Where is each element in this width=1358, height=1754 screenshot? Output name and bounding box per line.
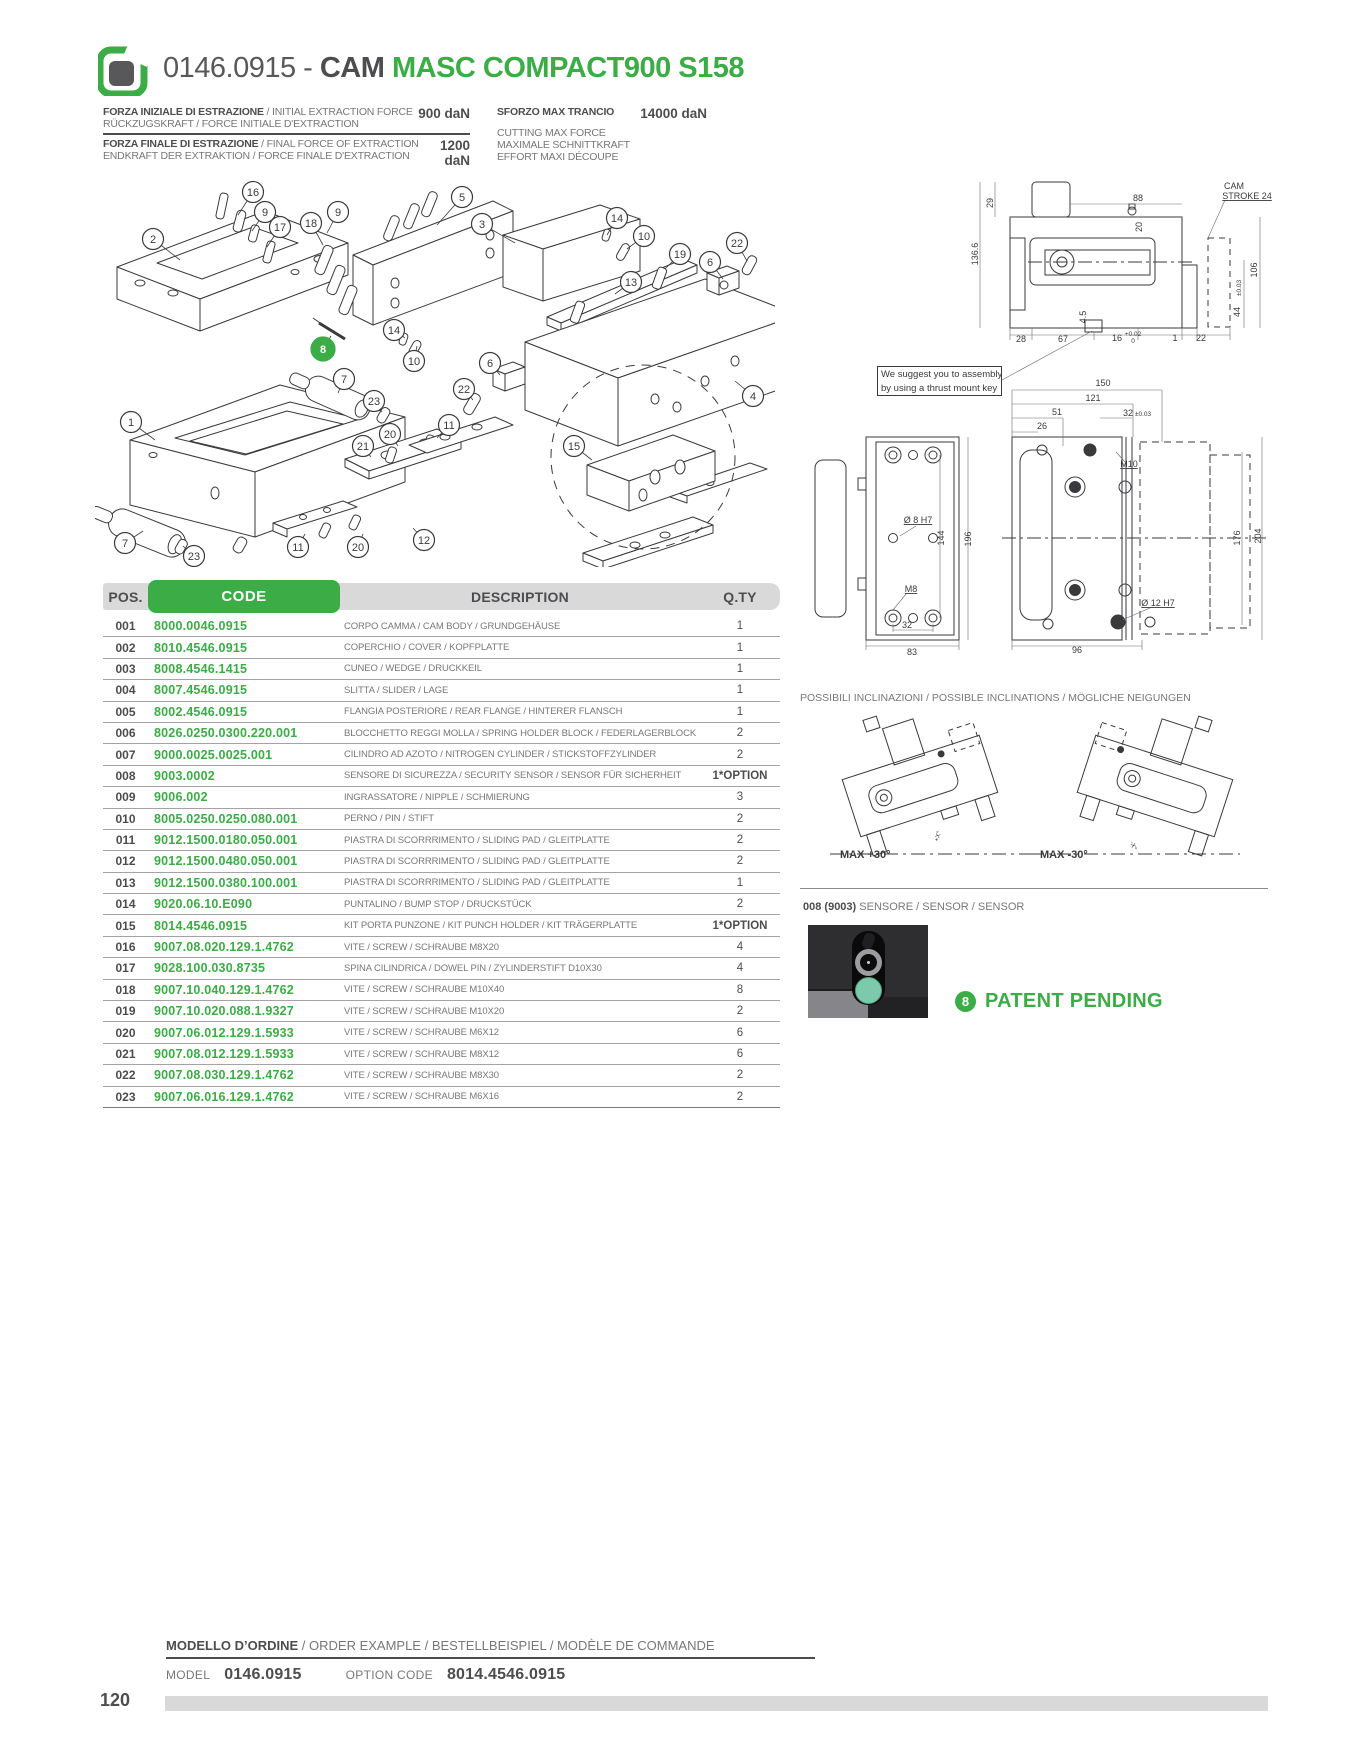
cell-description: SLITTA / SLIDER / LAGE [344, 685, 700, 696]
cell-qty: 2 [700, 1069, 780, 1081]
table-row: 0229007.08.030.129.1.4762VITE / SCREW / … [103, 1065, 780, 1086]
cell-code: 8010.4546.0915 [148, 641, 344, 655]
cell-pos: 020 [103, 1026, 148, 1040]
spec-cutting-l2: MAXIMALE SCHNITTKRAFT [497, 139, 707, 151]
cell-code: 8007.4546.0915 [148, 683, 344, 697]
cell-code: 9012.1500.0480.050.001 [148, 854, 344, 868]
dim-label: 51 [1052, 407, 1062, 417]
svg-text:6: 6 [487, 358, 493, 370]
cell-code: 9028.100.030.8735 [148, 961, 344, 975]
table-row: 0048007.4546.0915SLITTA / SLIDER / LAGE1 [103, 680, 780, 701]
brand-logo-icon [98, 46, 148, 96]
cell-pos: 004 [103, 683, 148, 697]
cell-qty: 1 [700, 620, 780, 632]
cell-description: SENSORE DI SICUREZZA / SECURITY SENSOR /… [344, 770, 700, 781]
max-plus-label: MAX +30° [840, 849, 891, 861]
dim-label: 16 [1112, 333, 1122, 343]
patent-pending-label: PATENT PENDING [985, 990, 1163, 1013]
cell-pos: 006 [103, 726, 148, 740]
cell-pos: 009 [103, 790, 148, 804]
cell-description: VITE / SCREW / SCHRAUBE M6X12 [344, 1027, 700, 1038]
svg-text:9: 9 [335, 207, 341, 219]
dim-label: 32 [902, 620, 912, 630]
section-divider [800, 888, 1268, 889]
svg-text:23: 23 [368, 396, 380, 408]
dim-label: 136.6 [970, 243, 980, 266]
svg-text:10: 10 [408, 356, 420, 368]
cell-code: 9000.0025.0025.001 [148, 748, 344, 762]
cell-description: PIASTRA DI SCORRRIMENTO / SLIDING PAD / … [344, 835, 700, 846]
dim-label: 204 [1253, 528, 1263, 543]
col-header-qty: Q.TY [700, 589, 780, 605]
cell-description: BLOCCHETTO REGGI MOLLA / SPRING HOLDER B… [344, 728, 700, 739]
svg-text:16: 16 [247, 187, 259, 199]
dimension-drawings: 29136.68820CAMSTROKE 24106±0.034428674.5… [730, 150, 1280, 670]
cell-code: 9007.10.020.088.1.9327 [148, 1004, 344, 1018]
cell-pos: 003 [103, 662, 148, 676]
cell-description: COPERCHIO / COVER / KOPFPLATTE [344, 642, 700, 653]
model-value: 0146.0915 [224, 1666, 301, 1684]
sensor-green-button [855, 977, 882, 1004]
svg-text:10: 10 [638, 231, 650, 243]
svg-text:+X°: +X° [932, 830, 943, 843]
dim-label: 121 [1085, 393, 1100, 403]
cell-pos: 023 [103, 1090, 148, 1104]
svg-text:18: 18 [305, 218, 317, 230]
spec-divider [103, 133, 470, 135]
product-family: CAM [320, 52, 392, 84]
dim-label: 88 [1133, 193, 1143, 203]
dim-label: 106 [1249, 262, 1259, 277]
cell-code: 8002.4546.0915 [148, 705, 344, 719]
svg-text:7: 7 [341, 374, 347, 386]
dim-label: M8 [905, 584, 918, 594]
cell-description: PUNTALINO / BUMP STOP / DRUCKSTÜCK [344, 899, 700, 910]
spec-cutting-title: SFORZO MAX TRANCIO [497, 106, 614, 121]
table-row: 0199007.10.020.088.1.9327VITE / SCREW / … [103, 1001, 780, 1022]
dim-label: 26 [1037, 421, 1047, 431]
cell-pos: 022 [103, 1068, 148, 1082]
dim-label: 44 [1232, 307, 1242, 317]
cell-qty: 3 [700, 791, 780, 803]
dim-label: Ø 8 H7 [904, 515, 933, 525]
dim-label: Ø 12 H7 [1141, 598, 1175, 608]
cell-description: SPINA CILINDRICA / DOWEL PIN / ZYLINDERS… [344, 963, 700, 974]
svg-text:1: 1 [128, 417, 134, 429]
table-row: 0129012.1500.0480.050.001PIASTRA DI SCOR… [103, 851, 780, 872]
cell-code: 8014.4546.0915 [148, 919, 344, 933]
cell-qty: 1 [700, 877, 780, 889]
parts-table: 0018000.0046.0915CORPO CAMMA / CAM BODY … [103, 616, 780, 1108]
cell-description: CUNEO / WEDGE / DRUCKKEIL [344, 663, 700, 674]
cell-pos: 012 [103, 854, 148, 868]
spec-initial-force-line1: FORZA INIZIALE DI ESTRAZIONE / INITIAL E… [103, 106, 413, 118]
cell-description: FLANGIA POSTERIORE / REAR FLANGE / HINTE… [344, 706, 700, 717]
cell-qty: 6 [700, 1048, 780, 1060]
cell-qty: 1*OPTION [700, 920, 780, 932]
cell-description: VITE / SCREW / SCHRAUBE M8X30 [344, 1070, 700, 1081]
table-row: 0079000.0025.0025.001CILINDRO AD AZOTO /… [103, 744, 780, 765]
spec-initial-force-value: 900 daN [413, 106, 470, 130]
svg-text:-X°: -X° [1128, 840, 1139, 852]
cell-code: 9007.06.016.129.1.4762 [148, 1090, 344, 1104]
order-title-rule [166, 1657, 815, 1659]
cell-pos: 007 [103, 748, 148, 762]
svg-text:14: 14 [388, 325, 400, 337]
cell-code: 9003.0002 [148, 769, 344, 783]
cell-pos: 008 [103, 769, 148, 783]
table-row: 0038008.4546.1415CUNEO / WEDGE / DRUCKKE… [103, 659, 780, 680]
dim-label: 32 [1123, 408, 1133, 418]
sensor-caption: 008 (9003) SENSORE / SENSOR / SENSOR [803, 901, 1024, 913]
cell-code: 9007.06.012.129.1.5933 [148, 1026, 344, 1040]
table-row: 0219007.08.012.129.1.5933VITE / SCREW / … [103, 1044, 780, 1065]
spec-cutting-value: 14000 daN [627, 106, 707, 121]
cell-code: 8008.4546.1415 [148, 662, 344, 676]
cell-qty: 2 [700, 1091, 780, 1103]
dim-label: 67 [1058, 334, 1068, 344]
cell-pos: 011 [103, 833, 148, 847]
inclinations-title: POSSIBILI INCLINAZIONI / POSSIBLE INCLIN… [800, 692, 1191, 704]
table-row: 0209007.06.012.129.1.5933VITE / SCREW / … [103, 1022, 780, 1043]
cell-description: CILINDRO AD AZOTO / NITROGEN CYLINDER / … [344, 749, 700, 760]
cell-description: PIASTRA DI SCORRRIMENTO / SLIDING PAD / … [344, 856, 700, 867]
table-row: 0119012.1500.0180.050.001PIASTRA DI SCOR… [103, 830, 780, 851]
cell-description: KIT PORTA PUNZONE / KIT PUNCH HOLDER / K… [344, 920, 700, 931]
cell-pos: 019 [103, 1004, 148, 1018]
cell-pos: 017 [103, 961, 148, 975]
cell-code: 9007.08.030.129.1.4762 [148, 1068, 344, 1082]
cell-description: CORPO CAMMA / CAM BODY / GRUNDGEHÄUSE [344, 621, 700, 632]
spec-cutting-l1: CUTTING MAX FORCE [497, 127, 707, 139]
table-row: 0099006.002INGRASSATORE / NIPPLE / SCHMI… [103, 787, 780, 808]
table-row: 0179028.100.030.8735SPINA CILINDRICA / D… [103, 958, 780, 979]
cell-qty: 4 [700, 962, 780, 974]
svg-text:6: 6 [707, 257, 713, 269]
cell-code: 9012.1500.0380.100.001 [148, 876, 344, 890]
table-row: 0158014.4546.0915KIT PORTA PUNZONE / KIT… [103, 915, 780, 936]
dim-label: ±0.03 [1135, 411, 1152, 418]
cell-pos: 018 [103, 983, 148, 997]
cell-pos: 013 [103, 876, 148, 890]
svg-text:8: 8 [320, 344, 326, 356]
table-row: 0108005.0250.0250.080.001PERNO / PIN / S… [103, 809, 780, 830]
svg-text:17: 17 [274, 222, 286, 234]
col-header-pos: POS. [103, 589, 148, 605]
cell-qty: 1 [700, 642, 780, 654]
svg-text:13: 13 [625, 277, 637, 289]
cell-pos: 010 [103, 812, 148, 826]
dim-label: 96 [1072, 645, 1082, 655]
cell-pos: 002 [103, 641, 148, 655]
option-code-value: 8014.4546.0915 [447, 1666, 565, 1684]
page-title: 0146.0915 - CAM MASC COMPACT900 S158 [163, 52, 744, 85]
model-label: MODEL [166, 1668, 210, 1682]
table-row: 0149020.06.10.E090PUNTALINO / BUMP STOP … [103, 894, 780, 915]
dim-label: 150 [1095, 378, 1110, 388]
dim-label: ±0.03 [1236, 280, 1243, 297]
svg-text:3: 3 [479, 219, 485, 231]
dim-label: 20 [1134, 222, 1144, 232]
table-row: 0189007.10.040.129.1.4762VITE / SCREW / … [103, 980, 780, 1001]
product-model: MASC COMPACT900 S158 [392, 52, 744, 84]
dim-label: 22 [1196, 333, 1206, 343]
cell-code: 9007.08.012.129.1.5933 [148, 1047, 344, 1061]
cell-code: 8000.0046.0915 [148, 619, 344, 633]
dim-label: 0 [1131, 338, 1135, 345]
exploded-view-drawing: 2169171895314101962213141087236221212011… [95, 155, 775, 567]
table-row: 0169007.08.020.129.1.4762VITE / SCREW / … [103, 937, 780, 958]
cell-qty: 2 [700, 898, 780, 910]
dim-label: 196 [963, 531, 973, 546]
sensor-photo [808, 925, 928, 1018]
svg-text:21: 21 [357, 441, 369, 453]
table-row: 0139012.1500.0380.100.001PIASTRA DI SCOR… [103, 873, 780, 894]
svg-text:11: 11 [292, 542, 303, 554]
dim-label: STROKE 24 [1222, 191, 1272, 201]
col-header-description: DESCRIPTION [340, 589, 700, 605]
cell-code: 9007.10.040.129.1.4762 [148, 983, 344, 997]
balloon-8-badge: 8 [955, 991, 976, 1012]
table-row: 0089003.0002SENSORE DI SICUREZZA / SECUR… [103, 766, 780, 787]
cell-pos: 005 [103, 705, 148, 719]
dim-label: +0.02 [1125, 331, 1142, 338]
catalog-page: 0146.0915 - CAM MASC COMPACT900 S158 FOR… [0, 0, 1358, 1754]
svg-text:7: 7 [122, 538, 128, 550]
cell-code: 9007.08.020.129.1.4762 [148, 940, 344, 954]
svg-text:20: 20 [384, 429, 396, 441]
cell-description: PERNO / PIN / STIFT [344, 813, 700, 824]
cell-pos: 015 [103, 919, 148, 933]
svg-text:23: 23 [188, 551, 200, 563]
spec-initial-force-line2: RÜCKZUGSKRAFT / FORCE INITIALE D'EXTRACT… [103, 118, 413, 130]
cell-description: VITE / SCREW / SCHRAUBE M10X40 [344, 984, 700, 995]
spec-final-force-line1: FORZA FINALE DI ESTRAZIONE / FINAL FORCE… [103, 138, 419, 150]
table-row: 0028010.4546.0915COPERCHIO / COVER / KOP… [103, 637, 780, 658]
inclination-drawings: MAX +30° MAX -30° +X° -X° [800, 706, 1270, 886]
cell-pos: 001 [103, 619, 148, 633]
svg-text:5: 5 [459, 192, 465, 204]
dim-label: 144 [936, 530, 946, 545]
table-row: 0018000.0046.0915CORPO CAMMA / CAM BODY … [103, 616, 780, 637]
table-row: 0068026.0250.0300.220.001BLOCCHETTO REGG… [103, 723, 780, 744]
cell-qty: 2 [700, 834, 780, 846]
page-number: 120 [100, 1690, 130, 1711]
table-row: 0239007.06.016.129.1.4762VITE / SCREW / … [103, 1087, 780, 1108]
cell-description: VITE / SCREW / SCHRAUBE M6X16 [344, 1091, 700, 1102]
cell-code: 9006.002 [148, 790, 344, 804]
footer-bar [165, 1696, 1268, 1711]
cell-code: 9020.06.10.E090 [148, 897, 344, 911]
table-row: 0058002.4546.0915FLANGIA POSTERIORE / RE… [103, 702, 780, 723]
dim-label: 4.5 [1078, 311, 1088, 324]
cell-qty: 2 [700, 813, 780, 825]
cell-qty: 2 [700, 727, 780, 739]
cell-description: VITE / SCREW / SCHRAUBE M8X12 [344, 1049, 700, 1060]
cell-pos: 016 [103, 940, 148, 954]
order-example-title: MODELLO D’ORDINE / ORDER EXAMPLE / BESTE… [166, 1638, 715, 1653]
svg-text:12: 12 [418, 535, 430, 547]
svg-text:9: 9 [262, 207, 268, 219]
dim-label: 28 [1016, 334, 1026, 344]
dim-label: M10 [1120, 459, 1138, 469]
svg-text:14: 14 [611, 213, 623, 225]
cell-qty: 2 [700, 855, 780, 867]
svg-text:19: 19 [674, 249, 686, 261]
cell-qty: 6 [700, 1027, 780, 1039]
cell-qty: 8 [700, 984, 780, 996]
patent-pending: 8 PATENT PENDING [955, 990, 1163, 1013]
cell-code: 9012.1500.0180.050.001 [148, 833, 344, 847]
cell-pos: 014 [103, 897, 148, 911]
assembly-note: We suggest you to assembly by using a th… [877, 366, 1002, 396]
cell-description: INGRASSATORE / NIPPLE / SCHMIERUNG [344, 792, 700, 803]
dim-label: 176 [1232, 530, 1242, 545]
svg-text:22: 22 [458, 384, 470, 396]
svg-text:20: 20 [352, 542, 364, 554]
cell-qty: 1 [700, 663, 780, 675]
dim-label: 83 [907, 647, 917, 657]
order-example-row: MODEL 0146.0915 OPTION CODE 8014.4546.09… [166, 1666, 565, 1684]
cell-qty: 2 [700, 1005, 780, 1017]
max-minus-label: MAX -30° [1040, 849, 1088, 861]
svg-text:15: 15 [568, 441, 580, 453]
cell-pos: 021 [103, 1047, 148, 1061]
cell-description: VITE / SCREW / SCHRAUBE M8X20 [344, 942, 700, 953]
svg-text:2: 2 [150, 234, 156, 246]
col-header-code: CODE [148, 580, 340, 613]
cell-qty: 1*OPTION [700, 770, 780, 782]
dim-label: CAM [1224, 181, 1244, 191]
cell-code: 8026.0250.0300.220.001 [148, 726, 344, 740]
dim-label: 29 [985, 198, 995, 208]
svg-text:11: 11 [443, 420, 454, 432]
cell-qty: 1 [700, 706, 780, 718]
cell-description: PIASTRA DI SCORRRIMENTO / SLIDING PAD / … [344, 877, 700, 888]
cell-qty: 4 [700, 941, 780, 953]
product-code: 0146.0915 - [163, 52, 320, 84]
cell-qty: 1 [700, 684, 780, 696]
option-code-label: OPTION CODE [346, 1668, 433, 1682]
dim-label: 1 [1172, 333, 1177, 343]
cell-qty: 2 [700, 749, 780, 761]
cell-description: VITE / SCREW / SCHRAUBE M10X20 [344, 1006, 700, 1017]
cell-code: 8005.0250.0250.080.001 [148, 812, 344, 826]
